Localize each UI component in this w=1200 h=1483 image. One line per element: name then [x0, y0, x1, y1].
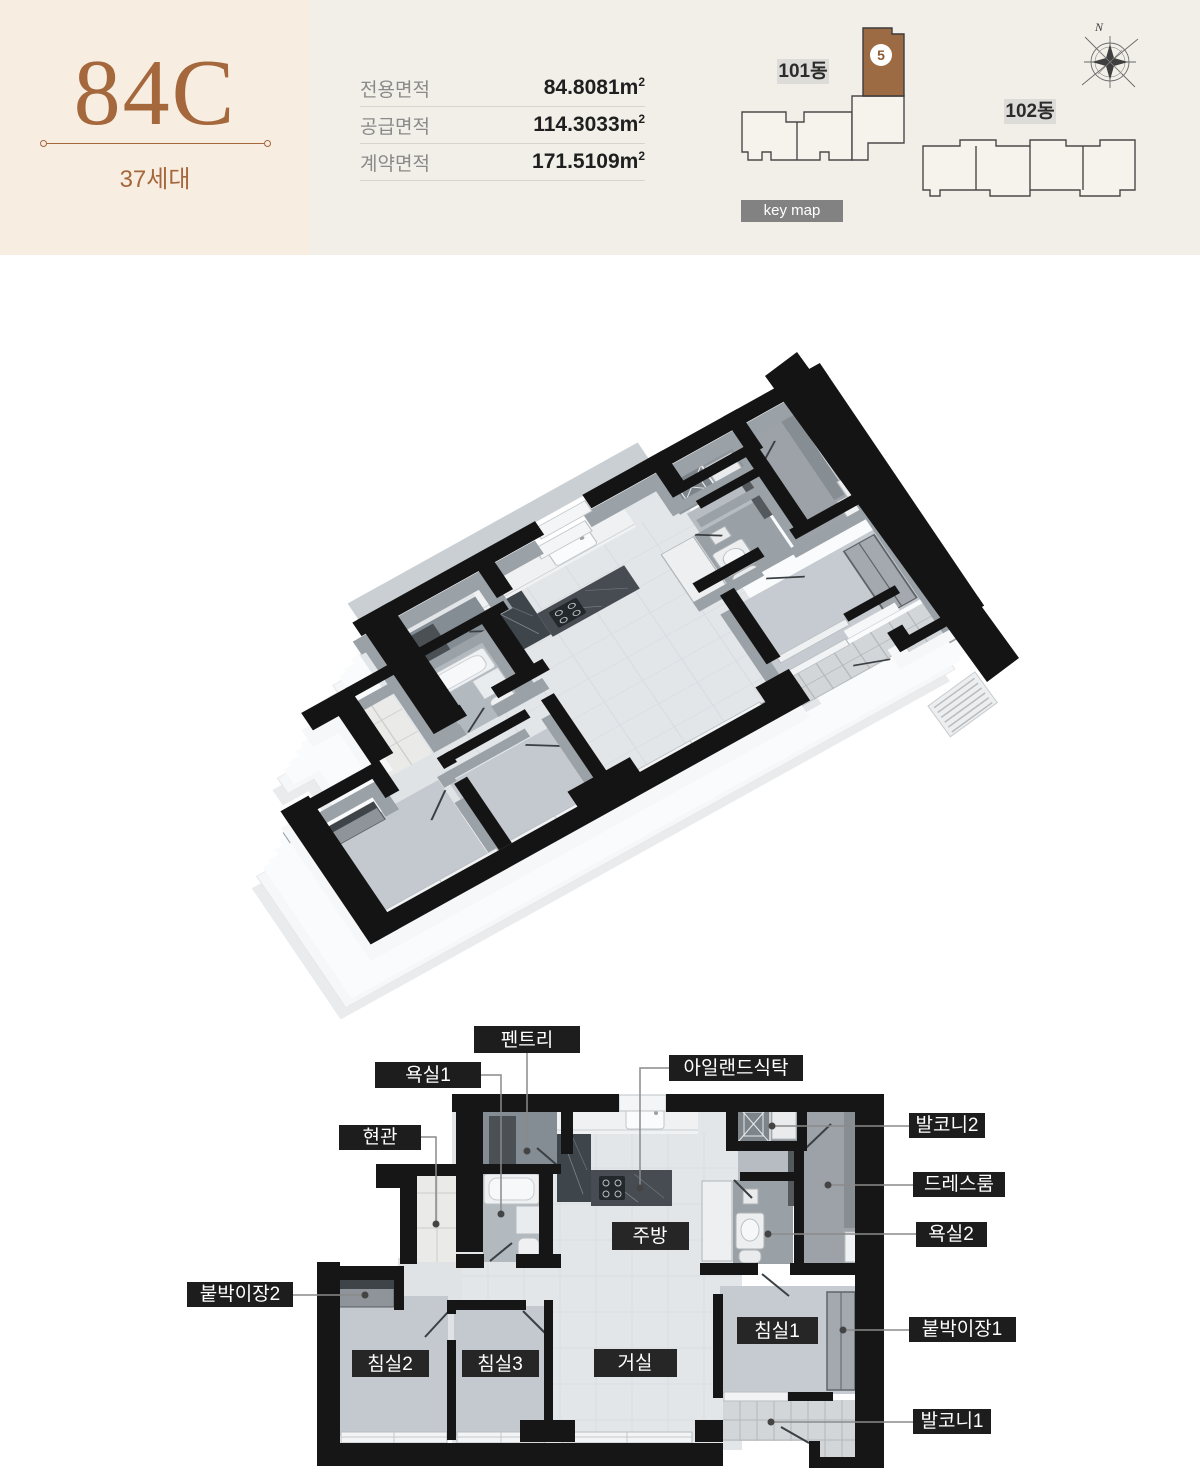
svg-text:드레스룸: 드레스룸 — [924, 1173, 994, 1195]
svg-text:발코니1: 발코니1 — [920, 1410, 983, 1432]
svg-text:침실3: 침실3 — [477, 1353, 523, 1375]
svg-text:침실1: 침실1 — [754, 1320, 800, 1342]
svg-text:발코니2: 발코니2 — [915, 1114, 978, 1136]
svg-text:아일랜드식탁: 아일랜드식탁 — [684, 1057, 789, 1079]
svg-text:펜트리: 펜트리 — [501, 1029, 553, 1051]
svg-text:붙박이장2: 붙박이장2 — [200, 1283, 281, 1305]
svg-text:N: N — [1094, 20, 1104, 34]
svg-text:침실2: 침실2 — [367, 1353, 413, 1375]
svg-text:욕실2: 욕실2 — [928, 1223, 974, 1245]
svg-text:현관: 현관 — [363, 1126, 398, 1148]
svg-text:거실: 거실 — [618, 1352, 653, 1374]
svg-text:5: 5 — [877, 47, 885, 63]
svg-text:주방: 주방 — [633, 1225, 668, 1247]
svg-text:붙박이장1: 붙박이장1 — [922, 1318, 1003, 1340]
svg-text:욕실1: 욕실1 — [405, 1064, 451, 1086]
